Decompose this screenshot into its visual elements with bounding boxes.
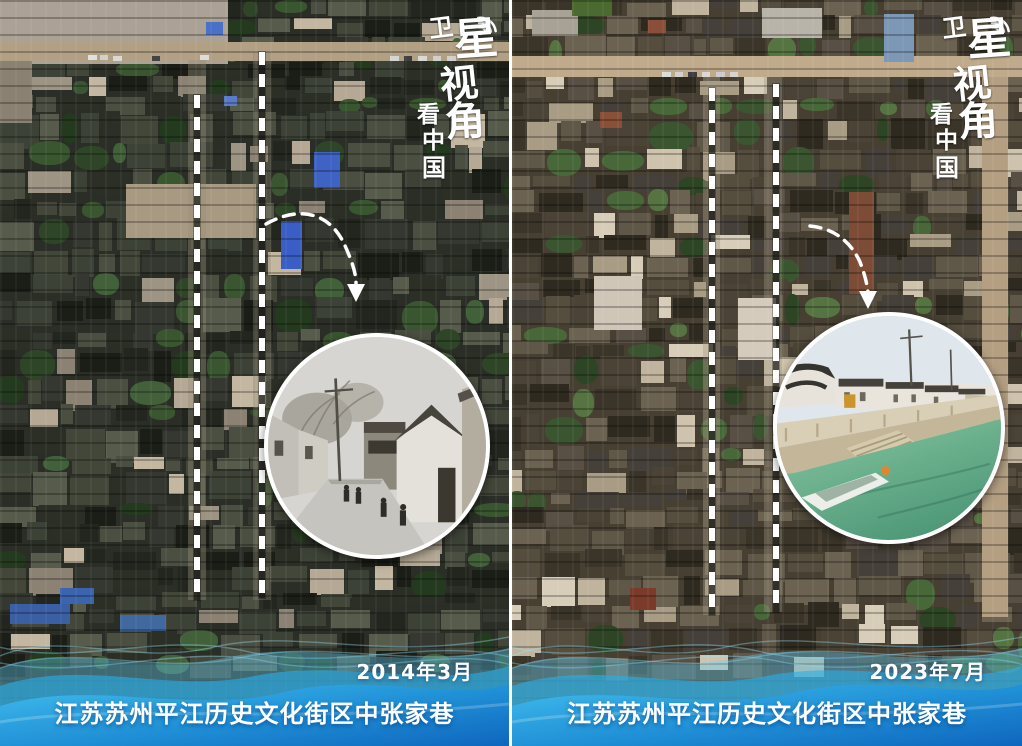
building xyxy=(120,251,140,276)
metal-roof xyxy=(884,14,914,62)
building xyxy=(561,121,581,141)
panel-2023: 卫 星 视 角 看 中 国 2023年7月 xyxy=(512,0,1022,746)
building xyxy=(849,77,890,93)
tree xyxy=(119,503,154,516)
building xyxy=(305,78,332,93)
building xyxy=(1011,509,1022,524)
building xyxy=(717,492,749,506)
light-roof xyxy=(762,8,822,38)
logo-char: 星 xyxy=(453,17,500,64)
building xyxy=(100,526,122,542)
building xyxy=(604,235,646,250)
building xyxy=(558,471,582,491)
building xyxy=(607,16,638,33)
tree xyxy=(724,387,743,405)
building xyxy=(641,361,664,383)
building xyxy=(839,16,851,38)
building xyxy=(882,215,909,233)
infographic: 卫 星 视 角 看 中 国 2014年3月 xyxy=(0,0,1022,746)
building xyxy=(447,252,470,269)
building xyxy=(828,121,847,140)
building xyxy=(512,78,525,93)
building xyxy=(62,99,102,110)
tree xyxy=(73,81,88,93)
building xyxy=(854,15,887,33)
building xyxy=(270,566,307,583)
building xyxy=(216,112,230,132)
car xyxy=(152,56,160,61)
building xyxy=(277,524,291,550)
building xyxy=(289,62,322,76)
tree xyxy=(602,151,645,172)
tree xyxy=(877,118,889,141)
building xyxy=(64,548,84,563)
building xyxy=(530,384,570,402)
car xyxy=(200,55,209,60)
building xyxy=(659,297,672,318)
building xyxy=(1006,237,1022,251)
building xyxy=(857,550,897,577)
red-roof xyxy=(600,112,622,128)
bw-street-photo xyxy=(268,337,486,555)
building xyxy=(116,456,133,467)
building xyxy=(261,0,274,19)
logo-char: 角 xyxy=(957,101,999,143)
building xyxy=(504,21,509,32)
building xyxy=(877,193,900,211)
building xyxy=(479,274,509,300)
building xyxy=(121,116,158,144)
building xyxy=(273,141,291,160)
building xyxy=(124,348,149,371)
building xyxy=(292,141,310,164)
building xyxy=(545,212,588,238)
building xyxy=(842,295,877,315)
car xyxy=(730,72,738,77)
building xyxy=(641,387,676,411)
building xyxy=(438,220,480,244)
building xyxy=(790,190,833,211)
building xyxy=(891,118,925,149)
building xyxy=(797,119,823,149)
tree xyxy=(224,20,256,35)
red-roof xyxy=(630,588,656,610)
building xyxy=(666,550,704,567)
building xyxy=(317,297,353,317)
building xyxy=(40,114,59,140)
building xyxy=(801,218,837,232)
building xyxy=(0,329,32,349)
canal-color-photo xyxy=(777,316,1001,540)
tree xyxy=(113,143,126,163)
logo-sub-char: 国 xyxy=(422,156,446,180)
tree xyxy=(243,1,257,18)
building xyxy=(512,18,523,40)
building xyxy=(674,214,698,233)
tree xyxy=(466,300,484,324)
building xyxy=(743,449,764,465)
building xyxy=(472,570,509,588)
building xyxy=(72,458,112,474)
building xyxy=(367,115,405,139)
building xyxy=(820,150,861,169)
building xyxy=(33,275,73,293)
building xyxy=(837,101,875,119)
inset-photo-canal-renovated xyxy=(773,312,1005,544)
building xyxy=(504,97,510,109)
building xyxy=(81,113,100,143)
building xyxy=(647,280,689,294)
building xyxy=(512,176,530,190)
building xyxy=(710,38,732,55)
building xyxy=(586,236,599,252)
building xyxy=(28,380,40,405)
building xyxy=(585,148,598,167)
logo-char: 星 xyxy=(966,17,1013,64)
building xyxy=(61,404,73,423)
building xyxy=(908,79,924,99)
building xyxy=(505,376,509,401)
building xyxy=(807,238,827,257)
route-dashed-line xyxy=(194,95,200,600)
building xyxy=(75,274,88,296)
car xyxy=(702,72,710,77)
building xyxy=(59,203,76,217)
building xyxy=(893,77,905,92)
building xyxy=(378,98,405,109)
building xyxy=(512,120,525,153)
building xyxy=(447,567,469,586)
logo-sub-char: 中 xyxy=(935,130,958,153)
building xyxy=(512,507,544,524)
building xyxy=(99,222,112,251)
building xyxy=(687,147,700,172)
building xyxy=(473,523,509,544)
building xyxy=(898,550,923,576)
car xyxy=(688,72,697,77)
building xyxy=(712,0,738,9)
building xyxy=(30,427,62,452)
tree xyxy=(721,448,741,462)
building xyxy=(778,527,818,551)
building xyxy=(300,548,333,563)
building xyxy=(819,172,837,190)
building xyxy=(578,578,605,605)
building xyxy=(158,568,173,585)
building xyxy=(305,218,334,241)
building xyxy=(142,254,184,273)
building xyxy=(727,19,760,39)
building xyxy=(512,529,546,544)
building xyxy=(716,258,751,273)
building xyxy=(533,176,569,187)
dirt xyxy=(0,61,32,123)
building xyxy=(0,350,17,374)
building xyxy=(78,333,105,347)
tree xyxy=(61,113,78,143)
route-dashed-line xyxy=(773,84,779,612)
building xyxy=(675,75,695,93)
building xyxy=(1006,258,1021,275)
building xyxy=(936,256,978,277)
building xyxy=(625,530,650,549)
building xyxy=(587,473,626,493)
building xyxy=(0,405,28,423)
logo-sub-char: 看 xyxy=(417,104,440,127)
building xyxy=(413,221,436,250)
building xyxy=(527,103,548,124)
building xyxy=(512,151,545,168)
logo-char: 卫 xyxy=(941,15,968,42)
building xyxy=(512,257,538,278)
building xyxy=(402,252,423,272)
building xyxy=(616,328,646,343)
building xyxy=(665,489,686,501)
building xyxy=(654,416,674,442)
building xyxy=(80,353,122,372)
building xyxy=(498,458,509,470)
building xyxy=(463,332,500,345)
building xyxy=(568,77,593,101)
car xyxy=(113,56,122,61)
building xyxy=(0,523,22,543)
building xyxy=(0,456,38,474)
building xyxy=(788,554,823,572)
building xyxy=(814,280,831,291)
building xyxy=(103,111,120,137)
tree xyxy=(130,381,171,405)
logo-sub-char: 国 xyxy=(935,156,959,180)
tree xyxy=(436,329,461,350)
tree xyxy=(349,200,378,216)
building xyxy=(929,279,963,291)
building xyxy=(539,193,583,213)
tree xyxy=(734,119,759,145)
building xyxy=(586,418,607,441)
building xyxy=(153,76,173,92)
white-court xyxy=(738,298,776,360)
tree xyxy=(275,299,313,332)
building xyxy=(924,554,963,574)
building xyxy=(480,591,509,602)
route-dashed-line xyxy=(709,88,715,615)
building xyxy=(817,79,844,99)
building xyxy=(86,549,108,560)
building xyxy=(33,333,51,349)
date-label: 2023年7月 xyxy=(869,656,986,685)
green-field xyxy=(572,0,612,16)
building xyxy=(73,221,93,247)
building xyxy=(134,457,163,469)
building xyxy=(956,237,978,256)
building xyxy=(694,39,706,55)
building xyxy=(116,596,157,610)
building xyxy=(0,143,24,169)
building xyxy=(527,81,542,99)
building xyxy=(508,249,509,270)
building xyxy=(492,552,509,563)
route-dashed-line xyxy=(259,52,265,598)
logo-sub-char: 中 xyxy=(422,130,445,153)
building xyxy=(642,298,657,320)
building xyxy=(849,119,871,142)
tree xyxy=(547,149,581,176)
building xyxy=(503,333,509,353)
tree xyxy=(648,189,668,211)
tree xyxy=(546,235,582,253)
car xyxy=(390,56,399,61)
building xyxy=(17,301,52,326)
tree xyxy=(156,329,183,347)
car xyxy=(404,56,412,61)
building xyxy=(445,593,475,604)
building xyxy=(30,77,72,90)
building xyxy=(512,341,548,353)
tree xyxy=(271,173,288,196)
building xyxy=(204,65,244,76)
building xyxy=(328,0,365,16)
building xyxy=(114,570,153,588)
building xyxy=(631,98,648,113)
building xyxy=(610,508,625,524)
building xyxy=(0,473,31,493)
building xyxy=(703,19,723,39)
building xyxy=(585,549,622,567)
building xyxy=(598,78,613,97)
building xyxy=(650,238,675,258)
building xyxy=(525,450,553,468)
building xyxy=(375,566,393,590)
building xyxy=(670,358,687,383)
building xyxy=(512,213,542,233)
building xyxy=(489,298,503,324)
building xyxy=(311,0,326,14)
building xyxy=(310,113,324,139)
building xyxy=(127,144,165,168)
blue-tarp xyxy=(206,22,223,35)
building xyxy=(542,577,576,607)
blue-tarp xyxy=(60,588,94,604)
tree xyxy=(43,456,70,471)
tree xyxy=(800,98,834,111)
building xyxy=(941,574,970,599)
tree xyxy=(116,62,159,77)
building xyxy=(730,415,752,448)
building xyxy=(301,329,320,341)
building xyxy=(652,467,674,485)
tree xyxy=(607,191,644,211)
building xyxy=(52,522,78,540)
building xyxy=(901,100,925,120)
building xyxy=(525,471,556,490)
inset-photo-historic-street-bw xyxy=(264,333,490,559)
building xyxy=(512,300,543,323)
location-caption: 江苏苏州平江历史文化街区中张家巷 xyxy=(0,694,509,729)
tree xyxy=(573,389,594,417)
building xyxy=(0,301,12,321)
building xyxy=(149,527,175,547)
building xyxy=(93,63,111,78)
building xyxy=(0,568,26,595)
building xyxy=(804,256,831,276)
building xyxy=(482,379,503,404)
building xyxy=(213,525,235,549)
building xyxy=(365,219,408,249)
building xyxy=(472,249,502,271)
building xyxy=(512,239,543,253)
car xyxy=(88,55,97,60)
building xyxy=(667,507,698,523)
building xyxy=(649,77,671,96)
building xyxy=(111,332,130,345)
tree xyxy=(160,116,186,144)
building xyxy=(752,238,765,252)
building xyxy=(0,273,31,292)
building xyxy=(879,173,907,191)
building xyxy=(326,111,364,132)
tree xyxy=(275,0,307,13)
tree xyxy=(504,173,509,203)
building xyxy=(446,276,475,296)
building xyxy=(722,191,752,216)
building xyxy=(381,201,404,219)
building xyxy=(588,451,608,471)
building xyxy=(911,173,932,191)
building xyxy=(507,297,509,329)
building xyxy=(836,255,849,269)
building xyxy=(512,384,527,404)
tree xyxy=(39,219,69,244)
building xyxy=(166,459,180,471)
building xyxy=(277,332,297,351)
building xyxy=(53,332,76,344)
building xyxy=(258,18,290,32)
building xyxy=(140,429,162,454)
building xyxy=(884,0,922,10)
building xyxy=(229,427,253,458)
date-label: 2014年3月 xyxy=(356,656,473,685)
building xyxy=(0,173,25,200)
building xyxy=(629,471,646,492)
tree xyxy=(275,203,296,217)
building xyxy=(1017,191,1022,209)
building xyxy=(70,476,109,505)
building xyxy=(545,553,580,580)
building xyxy=(902,257,933,279)
building xyxy=(116,405,147,421)
building xyxy=(655,215,668,240)
building xyxy=(281,116,306,139)
tree xyxy=(864,0,879,16)
building xyxy=(281,278,312,296)
building xyxy=(647,258,688,277)
building xyxy=(627,3,667,17)
tree xyxy=(207,351,230,382)
tree xyxy=(670,323,686,337)
red-roof xyxy=(648,20,666,33)
building xyxy=(484,407,509,424)
building xyxy=(28,171,71,193)
tree xyxy=(650,98,686,115)
blue-roof xyxy=(281,221,302,269)
building xyxy=(123,522,145,540)
logo-sub-char: 看 xyxy=(930,104,953,127)
building xyxy=(512,361,536,387)
building xyxy=(0,222,34,250)
building xyxy=(209,471,251,499)
building xyxy=(512,549,540,578)
building xyxy=(358,253,399,279)
